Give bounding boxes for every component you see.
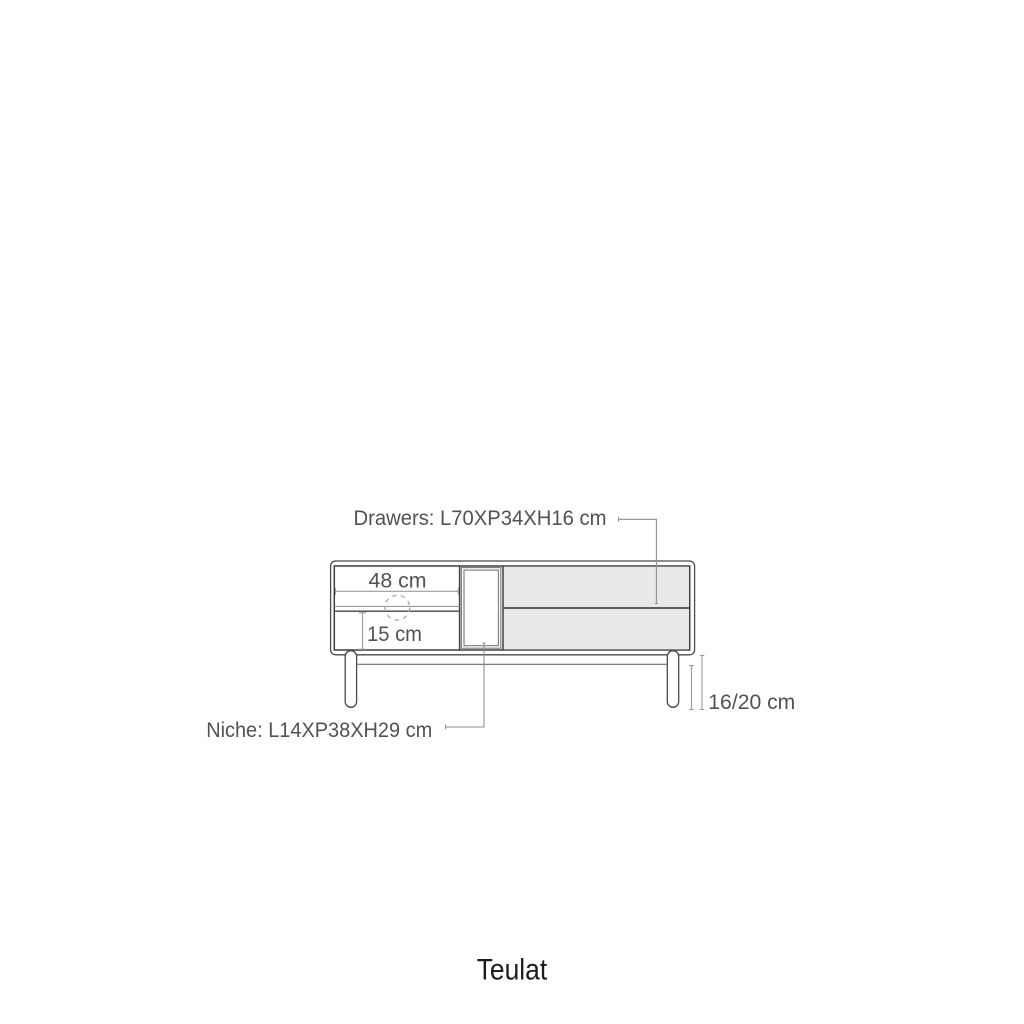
svg-text:Niche: L14XP38XH29 cm: Niche: L14XP38XH29 cm <box>206 718 432 742</box>
svg-text:Teulat: Teulat <box>477 954 548 987</box>
svg-text:16/20 cm: 16/20 cm <box>708 690 795 714</box>
svg-text:48 cm: 48 cm <box>369 569 427 593</box>
svg-text:15 cm: 15 cm <box>367 622 422 646</box>
svg-text:Drawers: L70XP34XH16 cm: Drawers: L70XP34XH16 cm <box>354 506 607 530</box>
